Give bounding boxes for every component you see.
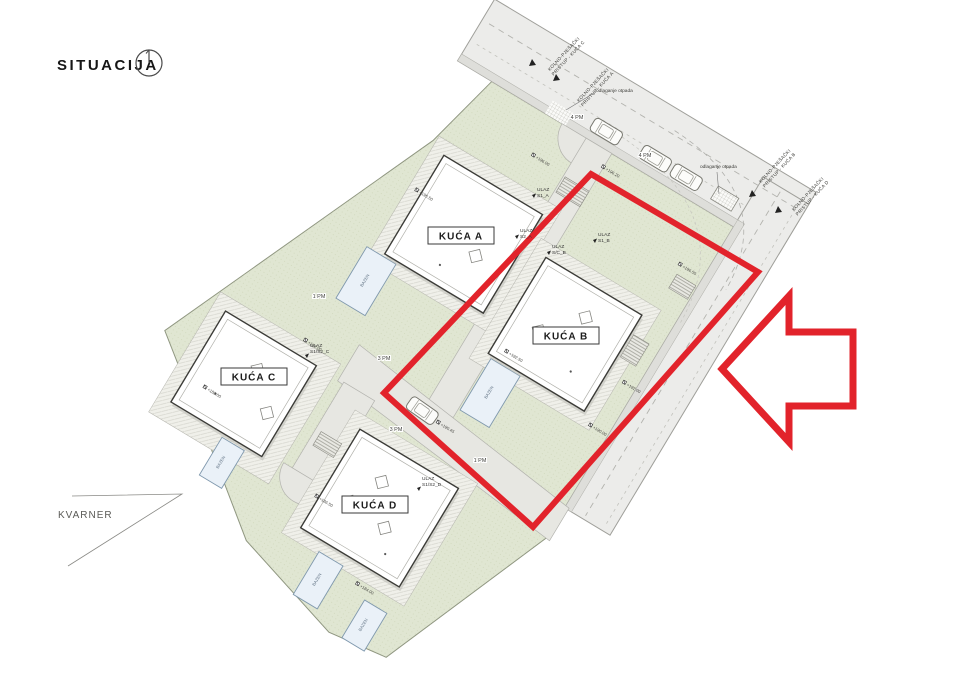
house-label-text: KUĆA D xyxy=(353,499,398,512)
entrance-label-line2: S1_A xyxy=(537,193,550,199)
entrance-label-line1: ULAZ xyxy=(422,476,434,482)
entrance-label-line1: ULAZ xyxy=(598,232,610,238)
entrance-label-line2: S/C_B xyxy=(552,250,566,256)
roof-skylight xyxy=(378,521,391,534)
entrance-label-line2: S1/S2_D xyxy=(422,482,442,488)
parking-label: 4 PM xyxy=(571,115,584,121)
waste-label: odlaganje otpada xyxy=(700,164,737,170)
house-label-text: KUĆA B xyxy=(544,330,589,343)
entrance-label-line1: ULAZ xyxy=(520,228,532,234)
rotated-plan-group: BAZEN BAZEN BAZEN BAZEN BAZEN xyxy=(75,0,816,676)
entrance-label-line2: S1_B xyxy=(598,238,610,244)
parking-label: 4 PM xyxy=(639,153,652,159)
page-title: SITUACIJA xyxy=(57,57,159,74)
site-plan-page: BAZEN BAZEN BAZEN BAZEN BAZEN xyxy=(0,0,960,676)
entrance-label-line1: ULAZ xyxy=(310,343,322,349)
roof-skylight xyxy=(579,311,592,324)
waste-label: odlaganje otpada xyxy=(596,88,633,94)
house-label-kuca-c: KUĆA C xyxy=(221,368,287,385)
house-label-kuca-b: KUĆA B xyxy=(533,327,599,344)
parking-label: 3 PM xyxy=(378,356,391,362)
house-label-kuca-a: KUĆA A xyxy=(428,227,494,244)
entrance-label-line1: ULAZ xyxy=(537,187,549,193)
sea-direction-lines xyxy=(68,494,182,566)
highlight-arrow-icon xyxy=(722,296,853,442)
house-label-text: KUĆA A xyxy=(439,230,483,243)
parking-label: 1 PM xyxy=(313,294,326,300)
entrance-label-line2: S1/S2_C xyxy=(310,349,330,355)
entrance-label-line1: ULAZ xyxy=(552,244,564,250)
roof-skylight xyxy=(375,475,388,488)
region-label: KVARNER xyxy=(58,510,113,521)
parking-label: 3 PM xyxy=(390,427,403,433)
house-label-kuca-d: KUĆA D xyxy=(342,496,408,513)
entrance-label-line2: S2_A xyxy=(520,234,533,240)
roof-skylight xyxy=(469,249,482,262)
site-plan-drawing: BAZEN BAZEN BAZEN BAZEN BAZEN xyxy=(0,0,960,676)
parking-label: 1 PM xyxy=(474,458,487,464)
roof-skylight xyxy=(260,406,273,419)
house-label-text: KUĆA C xyxy=(232,371,277,384)
